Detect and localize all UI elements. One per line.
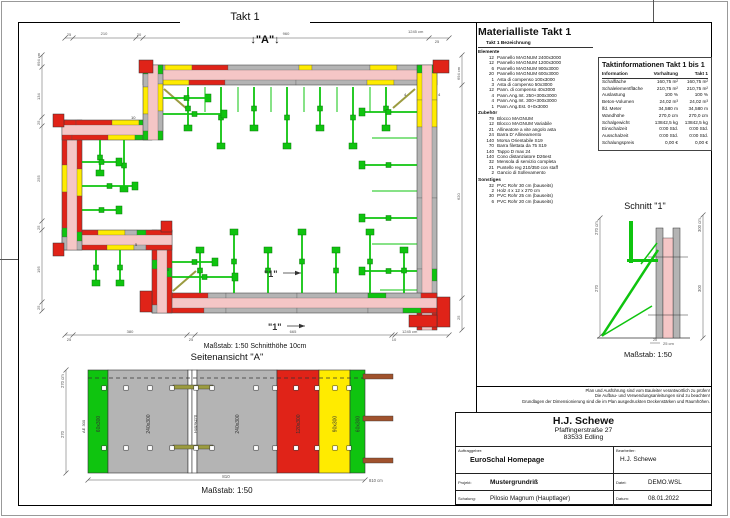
formwork-panel <box>77 196 82 232</box>
title-block-row-client: Auftraggeber: EuroSchal Homepage Bearbei… <box>456 446 711 473</box>
formwork-panel <box>312 65 370 70</box>
panel-connector <box>194 446 198 450</box>
panel-size-label: Holz4x270 <box>193 415 197 433</box>
corner-panel <box>161 221 172 232</box>
panel-connector <box>333 446 337 450</box>
corner-panel <box>433 60 449 73</box>
annotation-label: 25 cm <box>663 341 675 346</box>
panel-connector <box>294 446 298 450</box>
annotation-label: 20 <box>137 32 142 37</box>
formwork-panel <box>112 120 139 125</box>
formwork-panel <box>162 80 189 85</box>
section-view-scale: Maßstab: 1:50 <box>608 350 688 359</box>
formwork-panel <box>62 165 67 192</box>
formwork-panel <box>107 245 134 250</box>
panel-size-label: 60x300 <box>355 416 361 433</box>
takt-info-cell: 13842,5 kg <box>645 120 678 127</box>
brace-foot <box>198 268 203 273</box>
bracket-post <box>629 221 633 263</box>
panel-size-label: 240x300 <box>235 414 241 433</box>
formwork-panel <box>432 100 437 127</box>
takt-info-cell: Schalungspreis <box>602 140 645 147</box>
formwork-panel <box>62 228 67 237</box>
section-marker: "1" <box>264 269 278 279</box>
material-item-qty: 1 <box>478 104 494 109</box>
brace-foot <box>359 267 365 275</box>
formwork-panel <box>77 169 82 196</box>
material-list-title: Materialliste Takt 1 <box>478 26 593 38</box>
panel-connector <box>273 386 277 390</box>
brace-foot <box>382 125 390 131</box>
takt-info-cell: 210,75 m² <box>645 86 678 93</box>
formwork-panel <box>98 230 125 235</box>
annotation-label: 25 <box>67 32 72 37</box>
brace-foot <box>202 275 207 280</box>
disclaimer-notes: Plan und Ausführung sind vom Bauleiter v… <box>430 388 710 404</box>
takt-info-row: Schalfläche160,75 m²160,75 m² <box>602 79 708 86</box>
formwork-panel <box>77 232 82 241</box>
formwork-panel <box>403 308 421 313</box>
material-list-header: Takt 1 Bezeichnung <box>478 41 593 48</box>
panel-connector <box>210 446 214 450</box>
takt-info-cell: 34,580 m <box>645 106 678 113</box>
takt-info-row: Schalungspreis0,00 €0,00 € <box>602 140 708 147</box>
section-drawing: 300 cm300270 cm2702525 cm <box>594 213 706 347</box>
plan-scale-note: Maßstab: 1:50 Schnitthöhe 10cm <box>165 343 345 350</box>
takt-info-cell: Information <box>602 71 645 78</box>
annotation-label: 25 <box>36 225 41 230</box>
formwork-panel <box>168 308 204 313</box>
formwork-panel <box>192 65 228 70</box>
annotation-label: 1245 cm <box>408 29 424 34</box>
panel-connector <box>254 446 258 450</box>
takt-info-cell: 0:00 Std. <box>645 126 678 133</box>
takt-info-cell: 0:00 Std. <box>645 133 678 140</box>
takt-info-cell: 160,75 m² <box>645 79 678 86</box>
panel-connector <box>347 446 351 450</box>
panel-connector <box>315 386 319 390</box>
annotation-label: 25 <box>36 305 41 310</box>
brace-foot <box>99 160 104 165</box>
brace-foot <box>359 161 365 169</box>
formwork-panel <box>137 230 146 235</box>
formwork-panel <box>62 135 72 140</box>
company-name: H.J. Schewe <box>456 415 711 427</box>
brace-foot <box>107 184 112 189</box>
takt-info-cell: lfd. Meter <box>602 106 645 113</box>
material-item-qty: 2 <box>478 170 494 175</box>
panel-connector <box>333 386 337 390</box>
takt-info-cell: 0:00 Std. <box>678 126 708 133</box>
corner-panel <box>409 315 437 327</box>
formwork-panel <box>368 293 386 298</box>
brace-foot <box>359 214 365 222</box>
formwork-panel <box>146 245 172 250</box>
brace-foot <box>192 260 197 265</box>
brace-foot <box>283 143 291 149</box>
annotation-label: 25 <box>36 120 41 125</box>
alignment-rail <box>173 385 213 389</box>
title-block-row-project: Projekt: Mustergrundriß Datei: DEMO.WSL <box>456 473 711 490</box>
brace-foot <box>318 106 323 111</box>
formwork-panel <box>167 277 172 313</box>
file-cell: Datei: DEMO.WSL <box>614 474 711 490</box>
takt-info-cell: Wandhöhe <box>602 113 645 120</box>
formwork-panel <box>368 308 403 313</box>
plan-sheet: "1""1"1055442521020960251245 cm694 cm134… <box>0 0 730 518</box>
brace-foot <box>300 259 305 264</box>
formwork-panel <box>152 305 157 313</box>
brace-foot <box>386 216 391 221</box>
brace-foot <box>212 258 218 266</box>
annotation-label: 810 <box>222 474 230 479</box>
wall-core <box>152 298 437 308</box>
formwork-panel <box>370 65 397 70</box>
annotation-label: 380 <box>127 329 134 334</box>
arrow-head <box>295 271 301 275</box>
brace-foot <box>402 268 407 273</box>
panel-connector <box>315 446 319 450</box>
corner-rail <box>164 89 187 109</box>
material-item-label: Pann.Ang.Est. 0+0x3000 <box>497 104 548 109</box>
wall-core <box>143 70 437 80</box>
formwork-panel <box>76 120 112 125</box>
panel-size-label: 90x300 <box>332 416 338 433</box>
formwork-panel <box>172 293 208 298</box>
brace-foot <box>96 170 104 176</box>
material-item-row: 2Gancio di Sollevamento <box>478 170 593 175</box>
side-view-drawing: 60x300240x300Holz4x270240x300120x30090x3… <box>60 368 393 484</box>
annotation-label: 255 <box>36 175 41 182</box>
panel-size-label: 240x300 <box>146 414 152 433</box>
takt-info-cell: 210,75 m² <box>678 86 708 93</box>
formwork-panel <box>417 198 422 269</box>
brace-foot <box>232 273 238 281</box>
kicker-brace <box>602 306 652 336</box>
annotation-label: 25 <box>653 338 657 342</box>
alignment-bar <box>363 416 393 421</box>
formwork-panel <box>143 87 148 114</box>
brace-foot <box>250 125 258 131</box>
alignment-bar <box>363 458 393 463</box>
formwork-panel <box>228 65 299 70</box>
annotation-label: 300 cm <box>697 218 702 232</box>
formwork-panel <box>296 80 367 85</box>
panel-connector <box>294 386 298 390</box>
formwork-panel <box>417 127 422 198</box>
date-cell: Datum: 08.01.2022 <box>614 491 711 506</box>
formwork-panel <box>204 308 226 313</box>
takt-info-cell: 270,0 cm <box>678 113 708 120</box>
formwork-value: Pilosio Magnum (Hauptlager) <box>490 495 570 502</box>
takt-info-row: Wandhöhe270,0 cm270,0 cm <box>602 113 708 120</box>
material-item-qty: 6 <box>478 199 494 204</box>
annotation-label: 810 cm <box>369 478 383 483</box>
brace-foot <box>334 268 339 273</box>
brace-foot <box>351 115 356 120</box>
brace-foot <box>94 265 99 270</box>
corner-rail <box>173 271 196 291</box>
takt-info-row: Beton-Volumen24,02 m³24,02 m³ <box>602 99 708 106</box>
takt-info-cell: Ausschalzeit <box>602 133 645 140</box>
brace-foot <box>184 125 192 131</box>
corner-panel <box>139 60 153 73</box>
formwork-panel <box>421 308 437 313</box>
disclaimer-line: Grundlagen der Dimensionierung sind die … <box>430 399 710 404</box>
corner-panel <box>437 297 450 327</box>
panel-size-label: 120x300 <box>296 414 302 433</box>
wall-core <box>148 65 158 140</box>
formwork-panel <box>432 269 437 281</box>
takt-info-cell: Beton-Volumen <box>602 99 645 106</box>
panel-connector <box>124 446 128 450</box>
formwork-panel <box>158 65 163 74</box>
formwork-panel <box>656 228 663 338</box>
brace-foot <box>116 280 124 286</box>
takt-info-row: Schalgewicht13842,5 kg13842,5 kg <box>602 120 708 127</box>
file-label: Datei: <box>616 480 648 485</box>
brace-foot <box>196 247 204 253</box>
material-item-row: 1Pann.Ang.Est. 0+0x3000 <box>478 104 593 109</box>
title-block-row-formwork: Schalung: Pilosio Magnum (Hauptlager) Da… <box>456 490 711 506</box>
takt-info-cell: Schalfläche <box>602 79 645 86</box>
brace-foot <box>118 265 123 270</box>
title-block: H.J. Schewe Pfaffingerstraße 27 83533 Ed… <box>455 412 712 505</box>
takt-info-cell: 270,0 cm <box>645 113 678 120</box>
takt-info-row: Auslastung100 %100 % <box>602 92 708 99</box>
annotation-label: 270 <box>594 284 599 292</box>
takt-info-cell: Schalelementfläche <box>602 86 645 93</box>
brace-foot <box>217 143 225 149</box>
date-label: Datum: <box>616 496 648 501</box>
formwork-panel <box>62 192 67 228</box>
formwork-panel <box>226 308 297 313</box>
takt-info-header-row: InformationVorhaltungTakt 1 <box>602 71 708 79</box>
formwork-panel <box>299 65 312 70</box>
wall-core <box>663 238 673 338</box>
project-label: Projekt: <box>458 480 490 485</box>
brace-foot <box>368 259 373 264</box>
brace-foot <box>264 247 272 253</box>
brace-foot <box>285 115 290 120</box>
plan-drawing: "1""1"1055442521020960251245 cm694 cm134… <box>36 29 465 342</box>
formwork-label: Schalung: <box>458 496 490 501</box>
brace-foot <box>332 247 340 253</box>
corner-panel <box>53 243 64 256</box>
formwork-panel <box>143 74 148 87</box>
formwork-panel <box>152 269 157 305</box>
formwork-panel <box>72 135 108 140</box>
annotation-label: 10 <box>131 115 136 120</box>
editor-value: H.J. Schewe <box>616 453 709 463</box>
brace-foot <box>186 106 191 111</box>
brace-foot <box>232 259 237 264</box>
panel-connector <box>124 386 128 390</box>
formwork-panel <box>125 230 137 235</box>
brace-foot <box>366 229 374 235</box>
annotation-label: 4 <box>438 92 441 97</box>
annotation-label: 134 <box>36 93 41 100</box>
brace-foot <box>386 110 391 115</box>
annotation-label: 195 <box>36 266 41 273</box>
formwork-panel <box>143 114 148 131</box>
brace-foot <box>132 182 138 190</box>
formwork-panel <box>108 135 135 140</box>
takt-info-cell: 24,02 m³ <box>645 99 678 106</box>
formwork-panel <box>189 80 225 85</box>
formwork-panel <box>386 293 421 298</box>
brace-foot <box>386 163 391 168</box>
takt-info-cell: 160,75 m² <box>678 79 708 86</box>
takt-info-cell: 0,00 € <box>645 140 678 147</box>
brace-foot <box>400 247 408 253</box>
panel-connector <box>170 386 174 390</box>
side-view-title: Seitenansicht "A" <box>147 352 307 363</box>
brace-foot <box>92 280 100 286</box>
annotation-label: 25 <box>67 337 72 342</box>
corner-panel <box>140 291 152 312</box>
view-direction-marker-a: ↓"A"↓ <box>225 34 305 46</box>
takt-info-row: Einschalzeit0:00 Std.0:00 Std. <box>602 126 708 133</box>
panel-connector <box>148 386 152 390</box>
takt-info-cell: 24,02 m³ <box>678 99 708 106</box>
annotation-label: 10 <box>392 337 397 342</box>
annotation-label: 665 <box>290 329 297 334</box>
takt-info-cell: 100 % <box>645 92 678 99</box>
date-value: 08.01.2022 <box>648 495 679 502</box>
formwork-panel <box>225 80 296 85</box>
takt-info-row: lfd. Meter34,580 m34,580 m <box>602 106 708 113</box>
brace-foot <box>184 96 189 101</box>
takt-info-cell: Einschalzeit <box>602 126 645 133</box>
brace-foot <box>359 108 365 116</box>
formwork-panel <box>158 84 163 111</box>
project-cell: Projekt: Mustergrundriß <box>456 474 614 490</box>
material-list: Materialliste Takt 1 Takt 1 Bezeichnung … <box>478 26 593 204</box>
takt-info-cell: Schalgewicht <box>602 120 645 127</box>
annotation-label: 270 cm <box>60 374 65 388</box>
formwork-panel <box>143 131 148 140</box>
formwork-panel <box>421 293 437 298</box>
file-value: DEMO.WSL <box>648 479 682 486</box>
project-value: Mustergrundriß <box>490 479 538 486</box>
annotation-label: 270 cm <box>594 221 599 235</box>
panel-connector <box>170 446 174 450</box>
company-street: Pfaffingerstraße 27 <box>456 427 711 434</box>
panel-size-label: 60x300 <box>96 416 102 433</box>
formwork-panel <box>673 228 680 338</box>
formwork-panel <box>158 111 163 131</box>
formwork-panel <box>432 73 437 100</box>
takt-title: Takt 1 <box>180 11 310 23</box>
formwork-panel <box>158 131 163 140</box>
side-view-scale: Maßstab: 1:50 <box>162 486 292 495</box>
formwork-panel <box>165 65 192 70</box>
annotation-label: 210 <box>101 31 108 36</box>
panel-connector <box>254 386 258 390</box>
takt-info-cell: 100 % <box>678 92 708 99</box>
brace-foot <box>221 110 227 118</box>
brace-foot <box>192 112 197 117</box>
takt-info-cell: 0:00 Std. <box>678 133 708 140</box>
formwork-panel <box>432 127 437 198</box>
brace-foot <box>99 208 104 213</box>
corner-panel <box>53 114 64 127</box>
annotation-label: 694 cm <box>36 52 41 66</box>
formwork-panel <box>417 100 422 127</box>
formwork-panel <box>297 293 368 298</box>
material-item-label: Gancio di Sollevamento <box>497 170 546 175</box>
annotation-label: 1245 cm <box>402 329 418 334</box>
takt-info-table: InformationVorhaltungTakt 1Schalfläche16… <box>602 71 708 147</box>
annotation-label: 300 <box>697 284 702 292</box>
brace-foot <box>116 206 122 214</box>
material-item-label: PVC Rohr 20 cm (bauseits) <box>497 199 553 204</box>
formwork-cell: Schalung: Pilosio Magnum (Hauptlager) <box>456 491 614 506</box>
formwork-panel <box>208 293 226 298</box>
formwork-panel <box>77 241 82 250</box>
brace-foot <box>252 106 257 111</box>
takt-info-cell: Takt 1 <box>678 71 708 78</box>
panel-connector <box>273 446 277 450</box>
takt-info-cell: 0,00 € <box>678 140 708 147</box>
takt-info-cell: Vorhaltung <box>645 71 678 78</box>
brace-foot <box>386 269 391 274</box>
formwork-panel <box>152 260 157 269</box>
takt-info-cell: 13842,5 kg <box>678 120 708 127</box>
panel-connector <box>210 386 214 390</box>
brace-foot <box>298 229 306 235</box>
panel-connector <box>102 386 106 390</box>
panel-connector <box>148 446 152 450</box>
panel-connector <box>102 446 106 450</box>
takt-info-box: Taktinformationen Takt 1 bis 1 Informati… <box>598 57 712 151</box>
annotation-label: 270 <box>60 430 65 438</box>
company-city: 83533 Edling <box>456 434 711 441</box>
wall-core <box>422 65 432 330</box>
annotation-label: 620 <box>456 193 461 200</box>
section-marker: "1" <box>268 322 282 332</box>
panel-connector <box>194 386 198 390</box>
title-block-company: H.J. Schewe Pfaffingerstraße 27 83533 Ed… <box>456 413 711 446</box>
takt-info-cell: 34,580 m <box>678 106 708 113</box>
alignment-bar <box>363 374 393 379</box>
formwork-panel <box>432 198 437 269</box>
client-value: EuroSchal Homepage <box>458 453 611 464</box>
arrow-head <box>299 324 305 328</box>
alignment-rail <box>173 445 213 449</box>
takt-info-row: Schalelementfläche210,75 m²210,75 m² <box>602 86 708 93</box>
annotation-label: 694 cm <box>456 66 461 80</box>
annotation-label: 25 <box>435 39 440 44</box>
brace-foot <box>316 125 324 131</box>
formwork-panel <box>417 73 422 100</box>
annotation-label: 25 <box>189 337 194 342</box>
formwork-panel <box>417 65 422 73</box>
panel-connector <box>347 386 351 390</box>
brace-foot <box>205 94 211 102</box>
takt-info-title: Taktinformationen Takt 1 bis 1 <box>602 60 708 69</box>
brace-foot <box>116 158 122 166</box>
brace-foot <box>230 229 238 235</box>
material-list-items: Elemente12Pannello MAGNUM 2400x300012Pan… <box>478 50 593 204</box>
takt-info-cell: Auslastung <box>602 92 645 99</box>
wall-core <box>62 125 152 135</box>
section-view-title: Schnitt "1" <box>605 201 685 211</box>
annotation-label: 25 <box>456 315 461 320</box>
formwork-panel <box>297 308 368 313</box>
annotation-label: AE 300 <box>81 419 86 433</box>
